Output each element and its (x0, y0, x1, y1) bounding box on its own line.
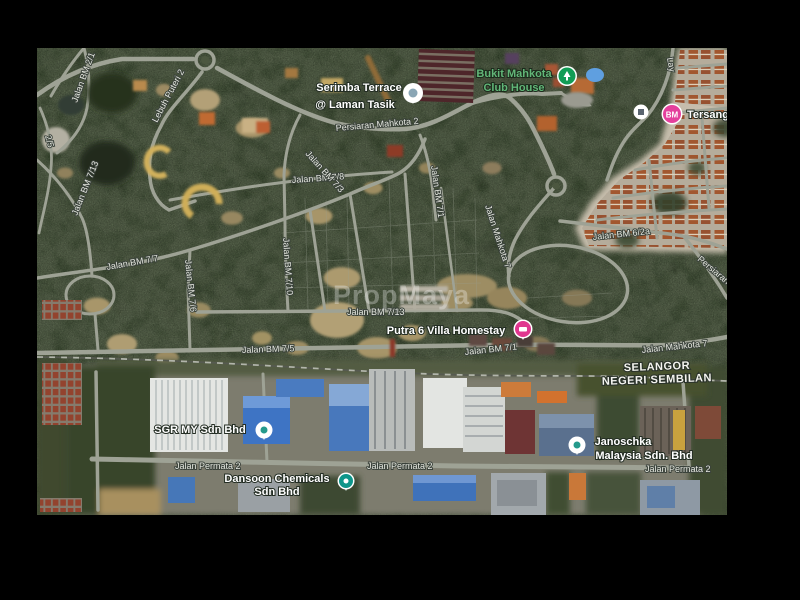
svg-text:Jalan Permata 2: Jalan Permata 2 (367, 461, 433, 471)
svg-text:SGR MY Sdn Bhd: SGR MY Sdn Bhd (154, 424, 245, 436)
svg-text:BM: BM (666, 111, 679, 120)
svg-text:PropMaya: PropMaya (333, 280, 470, 310)
svg-text:Jalan Permata 2: Jalan Permata 2 (645, 464, 711, 474)
svg-text:Malaysia Sdn. Bhd: Malaysia Sdn. Bhd (595, 450, 692, 462)
svg-text:Sdn Bhd: Sdn Bhd (254, 486, 299, 498)
svg-text:Jalan Permata 2: Jalan Permata 2 (175, 461, 241, 471)
svg-text:@ Laman Tasik: @ Laman Tasik (315, 99, 395, 111)
svg-text:Bukit Mahkota: Bukit Mahkota (476, 68, 552, 80)
svg-text:Serimba Terrace: Serimba Terrace (316, 82, 401, 94)
svg-text:Putra 6 Villa Homestay: Putra 6 Villa Homestay (387, 325, 506, 337)
svg-text:Tersang: Tersang (687, 109, 727, 121)
svg-text:Club House: Club House (483, 82, 544, 94)
svg-text:Jalan BM 7/5: Jalan BM 7/5 (242, 343, 295, 355)
svg-text:Janoschka: Janoschka (595, 436, 653, 448)
svg-text:Dansoon Chemicals: Dansoon Chemicals (224, 473, 329, 485)
svg-text:SELANGOR: SELANGOR (624, 360, 691, 374)
